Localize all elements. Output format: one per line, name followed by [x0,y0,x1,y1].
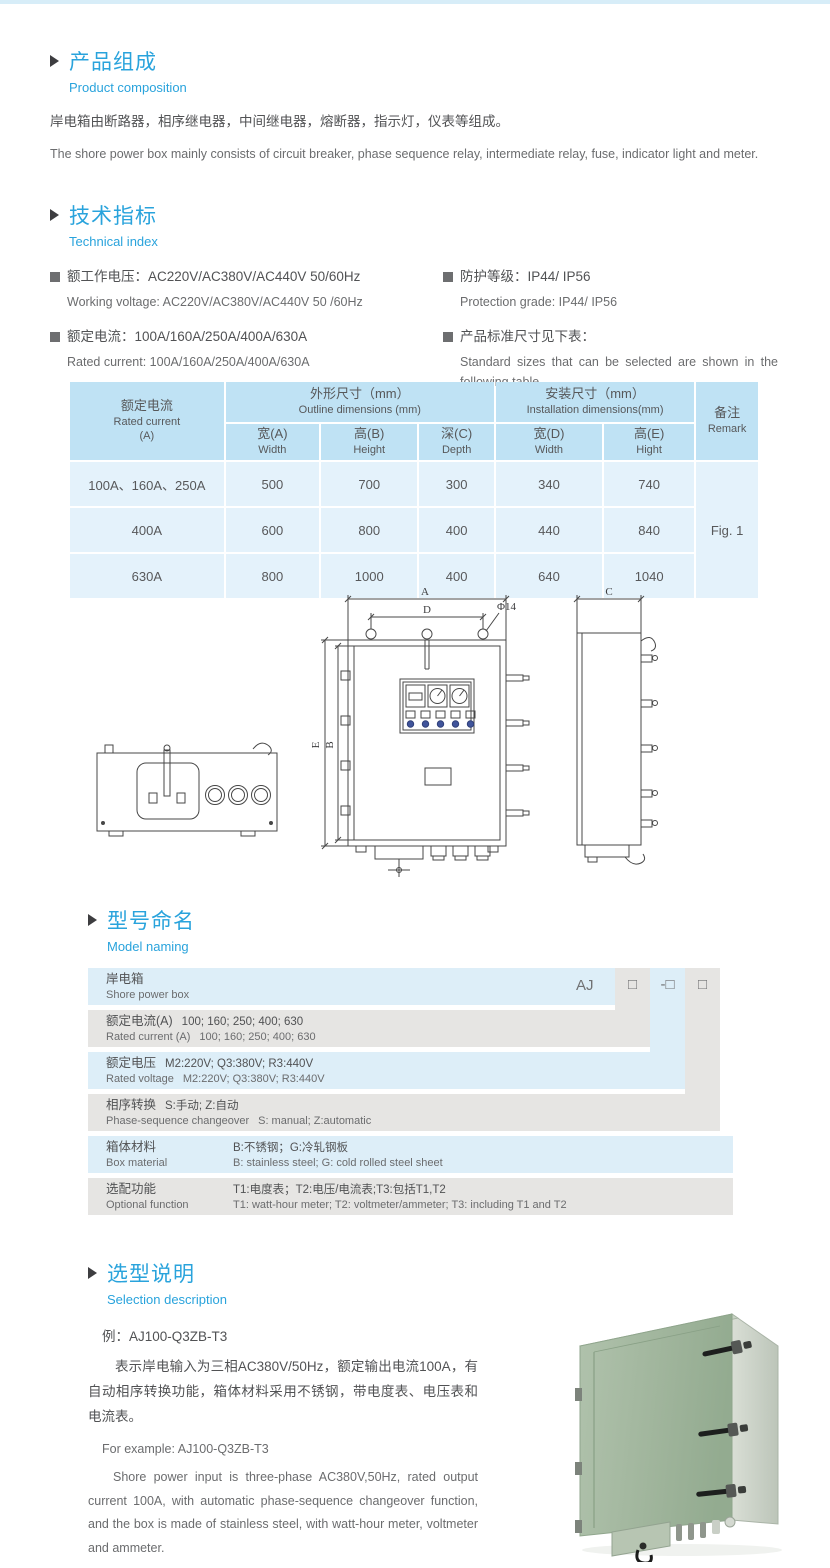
latches [506,675,529,816]
square-bullet-icon [443,272,453,282]
model-code-box-2: -□ [650,976,685,993]
spec-item: 防护等级：IP44/ IP56 Protection grade: IP44/ … [443,265,790,312]
row-label-cn: 箱体材料 [106,1139,224,1156]
cell-width: 600 [226,508,319,552]
cell-width: 500 [226,462,319,506]
section-title-en: Selection description [107,1292,478,1307]
naming-row-box-material: 箱体材料B:不锈钢；G:冷轧钢板 Box materialB: stainles… [88,1136,733,1173]
side-view: C [574,586,658,864]
triangle-bullet-icon [50,55,59,67]
section-title-cn: 产品组成 [69,46,157,76]
row-detail-cn: S:手动; Z:自动 [165,1100,238,1112]
triangle-bullet-icon [50,209,59,221]
section-title-cn: 技术指标 [69,200,157,230]
size-table: 额定电流 Rated current (A) 外形尺寸（mm） Outline … [68,380,760,600]
section-model-naming: 型号命名 Model naming 岸电箱 Shore power box 额定… [88,905,748,1220]
col-header: 宽(D) Width [496,424,602,460]
row-label-en: Phase-sequence changeover [106,1115,249,1127]
model-naming-diagram: 岸电箱 Shore power box 额定电流(A)100; 160; 250… [88,968,748,1220]
section-title-en: Product composition [69,80,780,95]
col-header-rated-current: 额定电流 Rated current (A) [70,382,224,460]
row-label-en: Rated voltage [106,1073,174,1085]
naming-row-shore-power-box: 岸电箱 Shore power box [88,968,615,1005]
table-row: 100A、160A、250A 500 700 300 340 740 Fig. … [70,462,758,506]
dim-label-A: A [421,586,429,598]
triangle-bullet-icon [88,914,97,926]
cell-depth: 400 [419,508,493,552]
spec-item: 额定电流：100A/160A/250A/400A/630A Rated curr… [50,325,415,372]
row-label-en: Box material [106,1156,224,1171]
spec-text-en: Protection grade: IP44/ IP56 [460,292,790,312]
cell-height: 700 [321,462,417,506]
model-code-box-1: □ [615,976,650,993]
bottom-view [97,743,277,836]
naming-row-optional-function: 选配功能T1:电度表；T2:电压/电流表;T3:包括T1,T2 Optional… [88,1178,733,1215]
section-title-en: Technical index [69,234,790,249]
section-title-cn: 选型说明 [107,1258,195,1288]
col-header: 高(B) Height [321,424,417,460]
dim-label-D: D [423,604,431,616]
col-header: 宽(A) Width [226,424,319,460]
dim-label-C: C [605,586,612,598]
spec-text-cn: 防护等级：IP44/ IP56 [460,269,591,284]
spec-text-en: Working voltage: AC220V/AC380V/AC440V 50… [67,292,415,312]
row-label-en: Rated current (A) [106,1031,190,1043]
square-bullet-icon [50,272,60,282]
spec-text-cn: 额工作电压：AC220V/AC380V/AC440V 50/60Hz [67,269,360,284]
naming-row-rated-current: 额定电流(A)100; 160; 250; 400; 630 Rated cur… [88,1010,650,1047]
row-label-en: Optional function [106,1198,224,1213]
selection-example-en: For example: AJ100-Q3ZB-T3 [102,1442,478,1456]
product-composition-text-en: The shore power box mainly consists of c… [50,144,780,165]
section-product-composition: 产品组成 Product composition 岸电箱由断路器，相序继电器，中… [50,46,780,165]
row-detail-cn: 100; 160; 250; 400; 630 [182,1016,304,1028]
product-composition-text-cn: 岸电箱由断路器，相序继电器，中间继电器，熔断器，指示灯，仪表等组成。 [50,111,780,134]
product-photo [542,1296,814,1562]
section-selection-description: 选型说明 Selection description 例：AJ100-Q3ZB-… [88,1258,478,1561]
section-heading: 技术指标 [50,200,790,230]
spec-text-cn: 产品标准尺寸见下表： [460,329,595,344]
col-header: 深(C) Depth [419,424,493,460]
cell-remark: Fig. 1 [696,462,758,598]
row-detail-en: 100; 160; 250; 400; 630 [199,1031,315,1043]
row-label-cn: 选配功能 [106,1181,224,1198]
row-detail-en: B: stainless steel; G: cold rolled steel… [233,1157,443,1169]
col-header-remark: 备注 Remark [696,382,758,460]
row-detail-en: S: manual; Z:automatic [258,1115,371,1127]
cell-install-width: 340 [496,462,602,506]
front-view: A D Φ14 E B [310,586,529,877]
row-label-cn: 额定电压 [106,1056,156,1070]
spec-item: 额工作电压：AC220V/AC380V/AC440V 50/60Hz Worki… [50,265,415,312]
cell-install-height: 840 [604,508,694,552]
col-header: 高(E) Hight [604,424,694,460]
row-label-cn: 额定电流(A) [106,1014,173,1028]
row-detail-cn: B:不锈钢；G:冷轧钢板 [233,1142,348,1154]
cell-depth: 300 [419,462,493,506]
model-prefix: AJ [576,977,594,994]
naming-row-rated-voltage: 额定电压M2:220V; Q3:380V; R3:440V Rated volt… [88,1052,685,1089]
size-table-wrap: 额定电流 Rated current (A) 外形尺寸（mm） Outline … [68,380,760,600]
section-title-en: Model naming [107,939,748,954]
cabinet-illustration [575,1314,782,1562]
dim-label-B: B [324,741,336,748]
indicator-lights [406,711,475,727]
selection-body-cn: 表示岸电输入为三相AC380V/50Hz，额定输出电流100A，有自动相序转换功… [88,1355,478,1430]
cell-height: 800 [321,508,417,552]
row-detail-en: M2:220V; Q3:380V; R3:440V [183,1073,325,1085]
model-code-box-3: □ [685,976,720,993]
row-detail-en: T1: watt-hour meter; T2: voltmeter/ammet… [233,1199,567,1211]
row-label-cn: 岸电箱 [106,972,144,986]
triangle-bullet-icon [88,1267,97,1279]
technical-drawing: A D Φ14 E B [85,583,745,891]
dim-label-phi14: Φ14 [497,601,517,613]
square-bullet-icon [50,332,60,342]
selection-body-en: Shore power input is three-phase AC380V,… [88,1466,478,1561]
spec-text-cn: 额定电流：100A/160A/250A/400A/630A [67,329,307,344]
naming-row-phase-sequence: 相序转换S:手动; Z:自动 Phase-sequence changeover… [88,1094,720,1131]
catalog-page: 产品组成 Product composition 岸电箱由断路器，相序继电器，中… [0,0,830,1568]
section-heading: 型号命名 [88,905,748,935]
col-group-outline: 外形尺寸（mm） Outline dimensions (mm) [226,382,494,422]
section-technical-index: 技术指标 Technical index 额工作电压：AC220V/AC380V… [50,200,790,405]
table-row: 400A 600 800 400 440 840 [70,508,758,552]
row-label-cn: 相序转换 [106,1098,156,1112]
row-label-en: Shore power box [106,989,189,1001]
spec-text-en: Rated current: 100A/160A/250A/400A/630A [67,352,415,372]
cell-install-width: 440 [496,508,602,552]
meter-panel [400,679,475,733]
section-heading: 选型说明 [88,1258,478,1288]
top-accent-line [0,0,830,4]
cell-current: 100A、160A、250A [70,462,224,506]
selection-example-cn: 例：AJ100-Q3ZB-T3 [102,1325,478,1345]
section-heading: 产品组成 [50,46,780,76]
col-group-install: 安装尺寸（mm） Installation dimensions(mm) [496,382,694,422]
section-title-cn: 型号命名 [107,905,195,935]
cell-current: 400A [70,508,224,552]
dim-label-E: E [310,741,322,748]
cell-install-height: 740 [604,462,694,506]
square-bullet-icon [443,332,453,342]
row-detail-cn: M2:220V; Q3:380V; R3:440V [165,1058,313,1070]
table-header-row: 额定电流 Rated current (A) 外形尺寸（mm） Outline … [70,382,758,422]
row-detail-cn: T1:电度表；T2:电压/电流表;T3:包括T1,T2 [233,1184,446,1196]
